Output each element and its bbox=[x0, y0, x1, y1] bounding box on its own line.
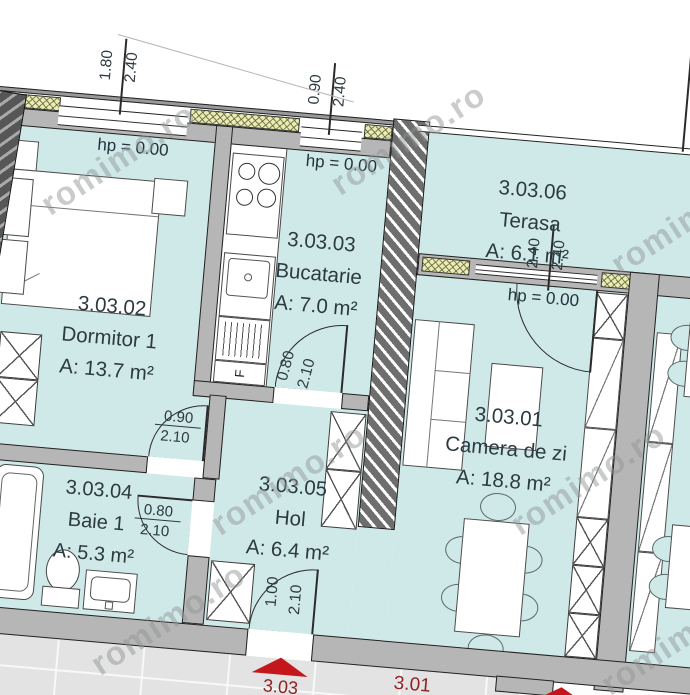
entry-wardrobe bbox=[206, 560, 255, 624]
toilet-tank bbox=[41, 586, 81, 609]
label-living: 3.03.01 Camera de zi A: 18.8 m² bbox=[412, 394, 600, 505]
dim-dormitor-door-w: 0.90 bbox=[155, 407, 202, 429]
stove-burner-icon bbox=[256, 188, 277, 209]
building-edge-line bbox=[682, 56, 690, 152]
nightstand-2 bbox=[151, 178, 188, 217]
dim-window-dormitor-w: 1.80 bbox=[95, 30, 121, 101]
stove-burner-icon bbox=[238, 162, 256, 180]
bath-sink-basin bbox=[89, 576, 131, 603]
floor-plan-canvas: F bbox=[0, 0, 690, 695]
dishwasher bbox=[215, 316, 271, 364]
label-dormitor: 3.03.02 Dormitor 1 A: 13.7 m² bbox=[15, 283, 203, 394]
living-wardrobe-3 bbox=[568, 565, 604, 616]
fridge-label: F bbox=[232, 368, 248, 377]
living-wardrobe-4 bbox=[564, 613, 600, 660]
label-terasa: 3.03.06 Terasa A: 6.1 m² bbox=[436, 167, 624, 278]
label-baie: 3.03.04 Baie 1 A: 5.3 m² bbox=[2, 466, 190, 577]
dim-dormitor-door-h: 2.10 bbox=[151, 427, 198, 449]
bath-sink-tap bbox=[105, 601, 114, 610]
living-wardrobe-2 bbox=[572, 517, 608, 568]
label-hol: 3.03.05 Hol A: 6.4 m² bbox=[196, 463, 384, 574]
dining-table bbox=[454, 518, 530, 637]
bucatarie-bottom-wall-2 bbox=[341, 393, 369, 411]
label-bucatarie: 3.03.03 Bucatarie A: 7.0 m² bbox=[225, 219, 413, 330]
hol-wardrobe bbox=[326, 411, 367, 472]
bedroom-wardrobe-2 bbox=[0, 377, 38, 426]
dim-window-dormitor-h: 2.40 bbox=[120, 32, 146, 103]
stove-burner-icon bbox=[235, 188, 253, 206]
